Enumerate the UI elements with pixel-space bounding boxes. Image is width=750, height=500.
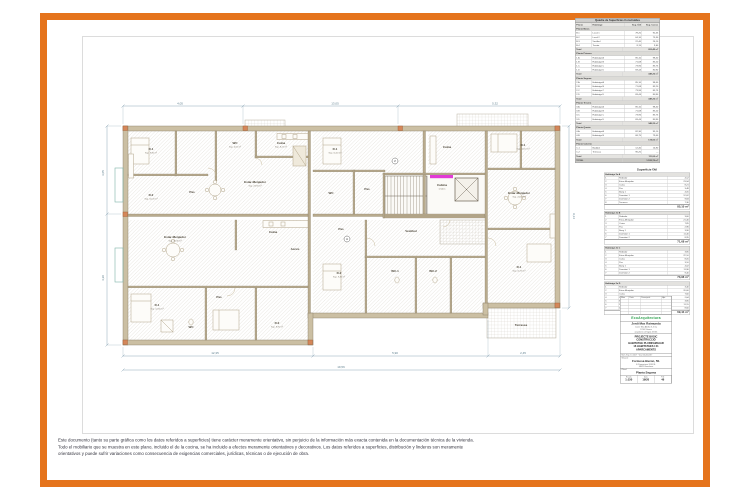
cell: 69,44 xyxy=(625,117,642,121)
dimension-label: 4,20 xyxy=(101,275,105,281)
cell: 85,10 xyxy=(625,56,642,60)
total-label: Total xyxy=(576,48,623,52)
room-area-label: Sup. 24,10 m² xyxy=(512,196,525,199)
room-label: D.2 xyxy=(149,193,154,197)
cell-room: Dormitori 2 xyxy=(618,236,668,239)
dimension-label: 12,35 xyxy=(211,351,219,355)
room-area-label: Sup. 26,30 m² xyxy=(168,240,181,243)
column-header: Sup. Útil xyxy=(625,23,642,27)
cell xyxy=(662,312,672,315)
room-area-label: Sup. 12,60 m² xyxy=(150,308,163,311)
cell: 73,96 xyxy=(625,113,642,117)
section-total: 71,68 m² xyxy=(605,240,690,245)
scale-value: 1:150 xyxy=(621,378,638,382)
cell: Habitatge D xyxy=(592,93,625,97)
room-label: Terrassa xyxy=(515,323,528,327)
cell-room: Terrassa xyxy=(618,201,668,204)
total-value: 174,50 m² xyxy=(623,138,660,142)
cell: 73,96 xyxy=(625,89,642,93)
cell: 98,40 xyxy=(642,105,659,109)
total-value: 348,25 m² xyxy=(623,97,660,101)
room-area-label: Sup. 11,40 m² xyxy=(329,152,342,155)
section-total: 85,10 m² xyxy=(605,205,690,210)
revisions-table: NúmDataDescripcióApr. xyxy=(621,297,672,315)
elevator-door-highlight xyxy=(430,175,453,178)
room-label: D.1 xyxy=(521,143,526,147)
cell: 83,20 xyxy=(642,60,659,64)
total-label: Total xyxy=(576,97,623,101)
cell: 98,40 xyxy=(642,56,659,60)
cell: 80,90 xyxy=(642,93,659,97)
room-area-label: Sup. 23,94 m² xyxy=(248,185,261,188)
cell: Habitatge C xyxy=(592,113,625,117)
cell: Habitatge A xyxy=(592,105,625,109)
cell: 96,20 xyxy=(625,150,642,154)
cell: 9,60 xyxy=(642,44,659,48)
plan-marker-letter: A xyxy=(346,237,348,241)
cell: Habitatge B xyxy=(592,60,625,64)
cell: Habitatge B xyxy=(592,109,625,113)
cell: 69,44 xyxy=(625,68,642,72)
dimension-label: 2,45 xyxy=(520,351,526,355)
disclaimer-line: orientativos y puede sufrir variaciones … xyxy=(58,451,688,458)
cell: 1.A xyxy=(576,56,592,60)
room-label: WC xyxy=(329,191,335,195)
architect-address: Carrer Mas Abella 8, 4t 1a17002 Gironaar… xyxy=(621,326,672,333)
cell: 98,40 xyxy=(642,80,659,84)
cell: Terrassa xyxy=(592,150,625,154)
cell: 8,15 xyxy=(625,44,642,48)
room-label: Estar-Menjador xyxy=(244,180,267,184)
section-total: 73,96 m² xyxy=(605,275,690,280)
date-value: 19/20 xyxy=(638,378,655,382)
cell: 85,75 xyxy=(642,113,659,117)
dimension-label: 4,05 xyxy=(177,102,183,106)
date-cell: Data 19/20 xyxy=(638,376,655,383)
drawing-sheet-page: D.1Sup. 9,80 m²D.2Sup. 10,20 m²PasWCSup.… xyxy=(0,0,750,500)
cell: 4.A xyxy=(576,130,592,134)
room-area-label: Sup. 4,05 m² xyxy=(229,146,241,149)
floor-plan: D.1Sup. 9,80 m²D.2Sup. 10,20 m²PasWCSup.… xyxy=(95,98,575,388)
cell: 2.A xyxy=(576,80,592,84)
cell: 68,75 xyxy=(625,134,642,138)
cell: Habitatge B xyxy=(592,85,625,89)
room-label: Cuina xyxy=(443,145,452,149)
room-area-label: Sup. 8,21 m² xyxy=(275,146,287,149)
room-area-label: Sup. 9,40 m² xyxy=(333,276,345,279)
grand-total-label: TOTAL xyxy=(576,158,623,162)
total-label: Total xyxy=(576,72,623,76)
room-label: Vestíbul xyxy=(405,229,417,233)
cell-code: 7 xyxy=(605,236,619,239)
cell-code: 7 xyxy=(605,306,619,309)
cell: B.2 xyxy=(576,35,592,39)
cell: Local 1 xyxy=(592,31,625,35)
balconies xyxy=(115,168,123,282)
dimension-label: 13,05 xyxy=(331,102,339,106)
scale-cell: Escala 1:150 xyxy=(621,376,638,383)
room-label: WC.1 xyxy=(391,269,399,273)
cell: 2.D xyxy=(576,93,592,97)
room-area-label: Sup. 9,80 m² xyxy=(145,152,157,155)
room-label: Cuina xyxy=(277,141,286,145)
cell: 82,30 xyxy=(625,130,642,134)
cell: Habitatge C xyxy=(592,89,625,93)
cell: B.1 xyxy=(576,31,592,35)
cell: 71,68 xyxy=(625,109,642,113)
cell: 79,40 xyxy=(642,134,659,138)
cell: 2.C xyxy=(576,89,592,93)
room-label: Cabina xyxy=(437,183,447,187)
room-label: Estar-Menjador xyxy=(164,235,187,239)
grand-total-value: 1.533,70 m² xyxy=(623,158,660,162)
grand-total-row: TOTAL1.533,70 m² xyxy=(576,158,660,162)
section-label: Planta Primera xyxy=(576,52,660,56)
cell: — xyxy=(642,150,659,154)
cell: 92,45 xyxy=(642,31,659,35)
cell: Habitatge C xyxy=(592,64,625,68)
cell: 85,75 xyxy=(642,89,659,93)
total-value: 348,25 m² xyxy=(623,121,660,125)
cell: Habitatge D xyxy=(592,117,625,121)
cell: 71,68 xyxy=(625,60,642,64)
cell: 3.B xyxy=(576,109,592,113)
total-value: 348,25 m² xyxy=(623,72,660,76)
section-label: Planta Coberta xyxy=(576,142,660,146)
room-label: D.1 xyxy=(517,265,522,269)
cell: 85,10 xyxy=(625,105,642,109)
section-label: Planta Tercera xyxy=(576,101,660,105)
cell: 3.C xyxy=(576,113,592,117)
room-label: Estar-Menjador xyxy=(508,191,531,195)
cell: Habitatge A xyxy=(592,80,625,84)
cell: Habitatge B xyxy=(592,134,625,138)
disclaimer-line: Todo el mobiliario que se muestra en est… xyxy=(58,444,688,451)
cell: Habitatge A xyxy=(592,130,625,134)
cell: Local 2 xyxy=(592,35,625,39)
total-label: Total xyxy=(576,154,623,158)
room-label: Pas xyxy=(216,295,222,299)
table-row: 8Terrassa7,30 xyxy=(605,201,690,205)
dimension-label: 5,32 xyxy=(492,102,498,106)
cell: 14,80 xyxy=(642,146,659,150)
table-row: 7Dormitori 29,40 xyxy=(605,271,690,275)
cell: 2.B xyxy=(576,85,592,89)
room-label: WC xyxy=(189,325,195,329)
room-label: D.1 xyxy=(155,303,160,307)
stair-core xyxy=(383,173,485,218)
cell: 71,68 xyxy=(625,85,642,89)
sheet-number-value: 46 xyxy=(655,378,672,382)
cell: 64,10 xyxy=(625,35,642,39)
project-title-lines: PROJECTE BÀSICCONSTRUCCIÓHABITATGE PLURI… xyxy=(621,334,672,353)
cell: Badalot xyxy=(592,146,625,150)
cell: Vestíbul xyxy=(592,39,625,43)
dimension-label: 19,56 xyxy=(337,365,345,369)
dimension-label: 3,05 xyxy=(101,170,105,176)
room-area-label: Sup. 8,90 m² xyxy=(271,326,283,329)
room-area-label: s/rodes xyxy=(439,188,446,191)
room-label: D.1 xyxy=(333,147,338,151)
cell-area: 9,40 xyxy=(668,271,690,274)
room-label: Pas xyxy=(189,190,195,194)
dimension-label: 5,90 xyxy=(392,351,398,355)
cell: 78,20 xyxy=(625,31,642,35)
useful-section: Habitatge 2n B1Rebedor3,602Estar-Menjado… xyxy=(604,211,690,245)
cell: 1.D xyxy=(576,68,592,72)
cell: 12,40 xyxy=(625,146,642,150)
room-label: Accés xyxy=(291,247,300,251)
room-label: Pas xyxy=(364,187,370,191)
cell: 85,10 xyxy=(625,80,642,84)
table-row: 7Dormitori 28,95 xyxy=(605,236,690,240)
cell: 1.B xyxy=(576,60,592,64)
disclaimer: Este documento (tanto su parte gráfica c… xyxy=(58,437,698,478)
cell: C.1 xyxy=(576,146,592,150)
room-area-label: Sup. 10,10 m² xyxy=(516,148,529,151)
useful-section: Habitatge 2n C1Rebedor3,852Estar-Menjado… xyxy=(604,246,690,280)
cell: Habitatge A xyxy=(592,56,625,60)
cell: 85,75 xyxy=(642,64,659,68)
cell: 3.D xyxy=(576,117,592,121)
room-label: D.2 xyxy=(337,271,342,275)
column-header: Sup. Const. xyxy=(642,23,659,27)
cell-room: Dormitori 2 xyxy=(618,271,668,274)
column-header: Planta xyxy=(576,23,592,27)
cell: 4.B xyxy=(576,134,592,138)
cell xyxy=(621,312,630,315)
room-label: WC.2 xyxy=(429,269,437,273)
room-label: WC xyxy=(233,141,239,145)
cell: 73,96 xyxy=(625,64,642,68)
cell: B.4 xyxy=(576,44,592,48)
room-area-label: Sup. 11,90 m² xyxy=(513,270,526,273)
room-label: D.2 xyxy=(275,321,280,325)
room-label: Cuina xyxy=(269,230,278,234)
cell: 95,10 xyxy=(642,130,659,134)
cell: 83,20 xyxy=(642,85,659,89)
cell: 75,30 xyxy=(642,35,659,39)
useful-section: Habitatge 2n A1Rebedor4,122Estar-Menjado… xyxy=(604,173,690,210)
cell: 22,40 xyxy=(625,39,642,43)
cell: 80,90 xyxy=(642,68,659,72)
cell: Traster xyxy=(592,44,625,48)
room-area-label: Sup. 10,20 m² xyxy=(144,198,157,201)
cell-area: 8,95 xyxy=(668,236,690,239)
cell-code: 8 xyxy=(605,201,619,204)
cell: B.3 xyxy=(576,39,592,43)
firm-logo: EcoArquitectura xyxy=(621,315,672,322)
cell-area: 7,30 xyxy=(668,201,690,204)
cell: 3.A xyxy=(576,105,592,109)
cell: 69,44 xyxy=(625,93,642,97)
column-header: Habitatge xyxy=(592,23,625,27)
sheet-cell: Full 46 xyxy=(655,376,672,383)
total-label: Total xyxy=(576,121,623,125)
room-label: D.1 xyxy=(149,147,154,151)
total-value: 203,45 m² xyxy=(623,48,660,52)
total-label: Total xyxy=(576,138,623,142)
section-label: Planta Baixa xyxy=(576,27,660,31)
cell xyxy=(629,312,641,315)
section-label: Planta Quarta xyxy=(576,126,660,130)
room-label: Pas xyxy=(338,227,344,231)
cell-code: 7 xyxy=(605,271,619,274)
scale-row: Escala 1:150 Data 19/20 Full 46 xyxy=(621,375,672,383)
total-value: 111,00 m² xyxy=(623,154,660,158)
cell: 80,90 xyxy=(642,117,659,121)
cell: C.2 xyxy=(576,150,592,154)
cell xyxy=(641,312,662,315)
section-label: Planta Segona xyxy=(576,76,660,80)
cell: 83,20 xyxy=(642,109,659,113)
cell: Habitatge D xyxy=(592,68,625,72)
cell: 26,10 xyxy=(642,39,659,43)
disclaimer-line: Este documento (tanto su parte gráfica c… xyxy=(58,437,688,444)
cell: 1.C xyxy=(576,64,592,68)
project-title: PROJECTE BÀSICCONSTRUCCIÓHABITATGE PLURI… xyxy=(621,333,672,353)
project-line: APARCAMENTS xyxy=(621,348,671,351)
